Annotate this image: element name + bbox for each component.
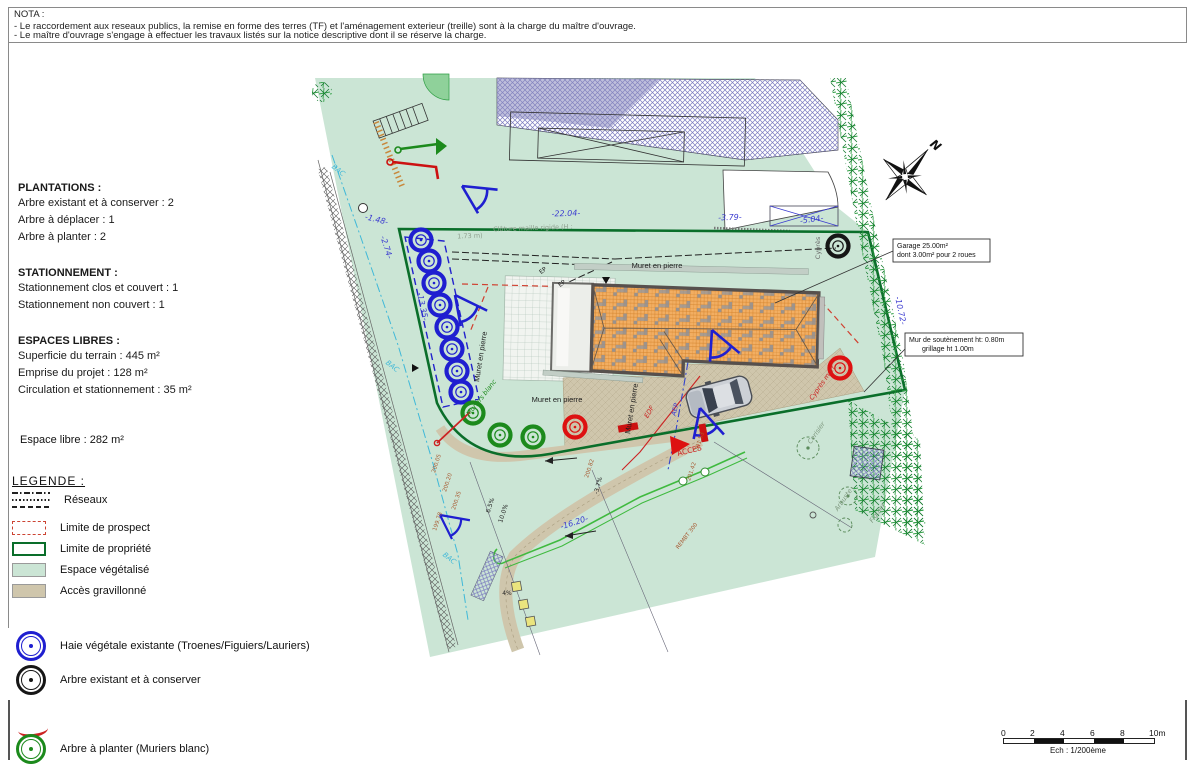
compass-rose: N bbox=[864, 120, 959, 218]
scale-bar: 0 2 4 6 8 10m Ech : 1/200ème bbox=[1003, 728, 1169, 755]
scale-tick-label: 8 bbox=[1120, 728, 1125, 738]
wall-callout-line1: Mur de soutènement ht: 0.80m bbox=[909, 337, 1004, 344]
utility-box bbox=[525, 616, 535, 626]
blue-hatched-square bbox=[850, 446, 884, 480]
dimension-label: -3.79- bbox=[718, 213, 742, 223]
scale-tick-label: 6 bbox=[1090, 728, 1095, 738]
utility-box bbox=[518, 599, 528, 609]
scale-labels: 0 2 4 6 8 10m bbox=[1003, 728, 1169, 738]
site-plan-page: { "nota": { "title": "NOTA :", "line1": … bbox=[0, 0, 1191, 760]
tree-label: Cyprès bbox=[814, 236, 822, 259]
scale-tick-label: 4 bbox=[1060, 728, 1065, 738]
pipe-manhole bbox=[701, 468, 709, 476]
fence-label: 1.73 m) bbox=[457, 232, 483, 241]
scale-caption: Ech : 1/200ème bbox=[1003, 746, 1153, 755]
wall-callout-line2: grillage ht 1.00m bbox=[922, 346, 974, 353]
scale-tick-label: 2 bbox=[1030, 728, 1035, 738]
wall-label: Muret en pierre bbox=[632, 261, 683, 270]
manhole bbox=[359, 204, 368, 213]
slope-label: 4% bbox=[502, 590, 512, 597]
garage-callout-line2: dont 3.00m² pour 2 roues bbox=[897, 252, 976, 259]
utility-box bbox=[511, 581, 521, 591]
retaining-wall-right bbox=[818, 297, 824, 359]
scale-tick-label: 10m bbox=[1149, 728, 1166, 738]
scale-bar-graphic bbox=[1003, 738, 1155, 744]
north-label: N bbox=[927, 137, 944, 154]
dimension-label: -22.04- bbox=[551, 209, 580, 219]
scale-tick-label: 0 bbox=[1001, 728, 1006, 738]
wall-label: Muret en pierre bbox=[532, 395, 583, 404]
garage-callout-line1: Garage 25.00m² bbox=[897, 243, 949, 250]
dimension-label: -10.72- bbox=[893, 296, 908, 326]
site-plan-drawing: N bbox=[0, 0, 1191, 760]
